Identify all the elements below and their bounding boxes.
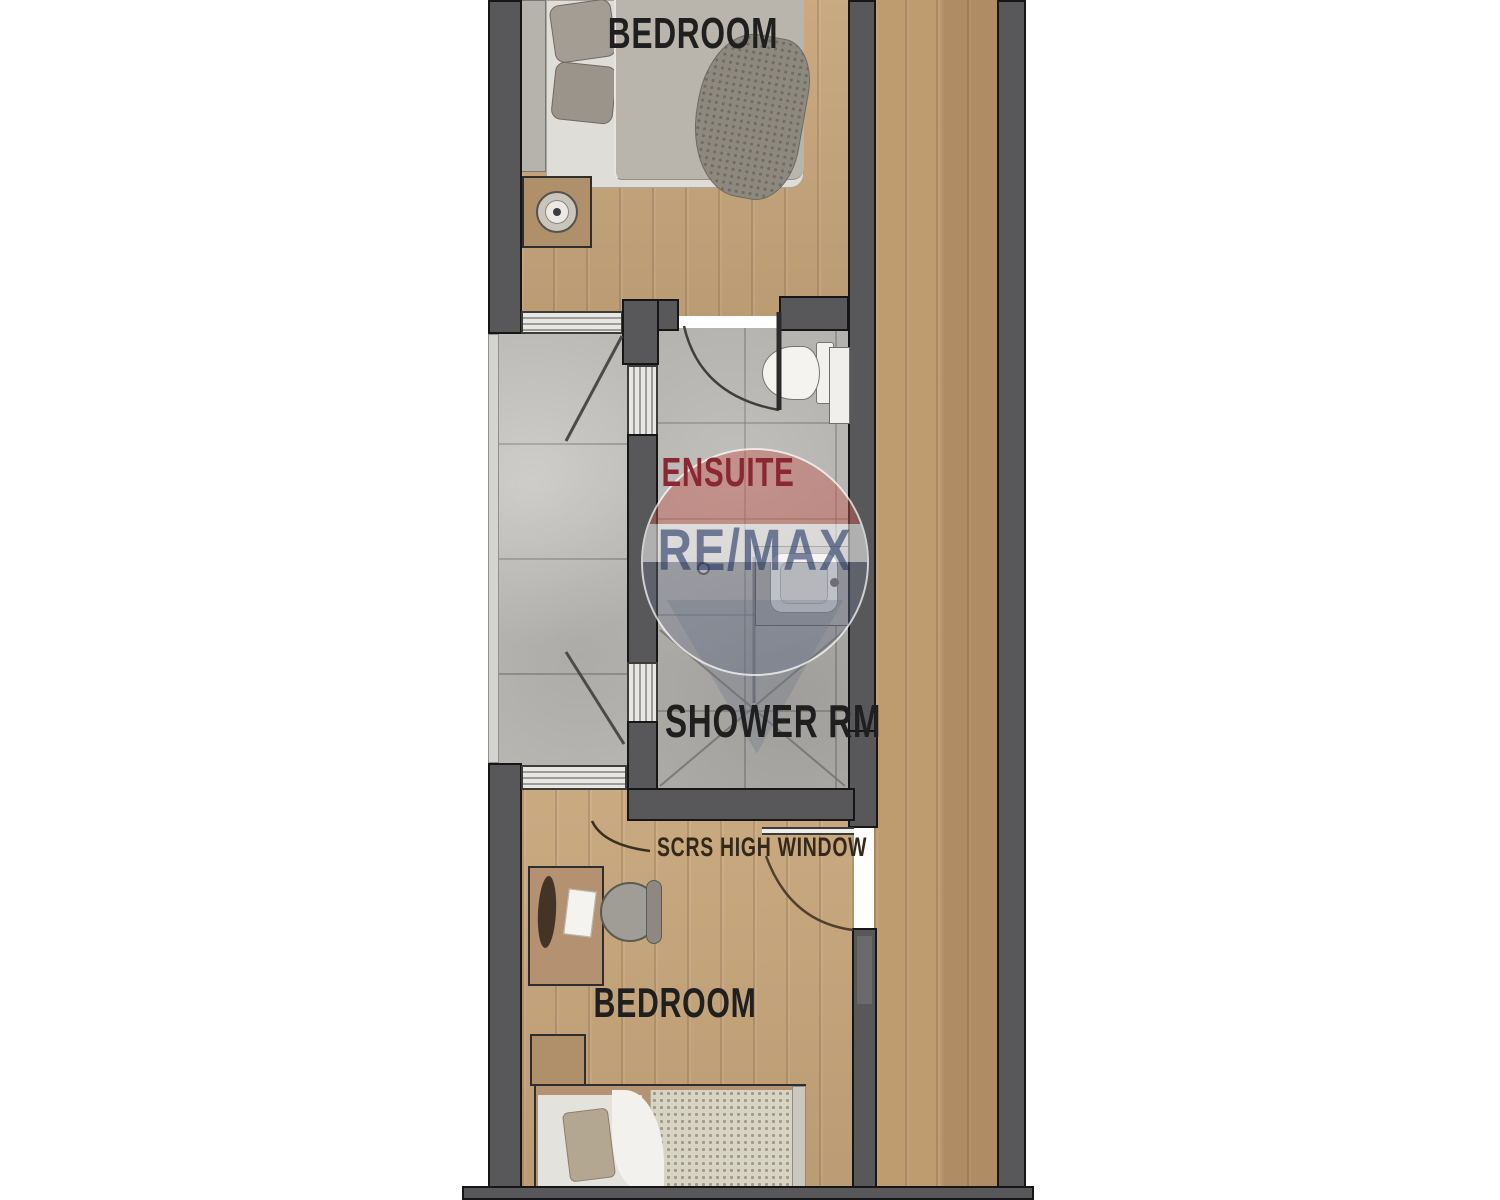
landing-door-leaf-lower: [566, 652, 624, 744]
watermark-brand-text: RE/MAX: [624, 522, 886, 580]
room-label-bedroom-bottom: BEDROOM: [578, 982, 772, 1024]
landing-door-leaf-upper: [566, 336, 622, 441]
window-note-leader-line: [592, 821, 650, 851]
room-label-bedroom-top: BEDROOM: [596, 12, 790, 56]
room-label-ensuite: ENSUITE: [656, 452, 800, 493]
ensuite-door-arc: [684, 326, 779, 410]
floor-plan: RE/MAX BEDROOM ENSUITE SHOWER RM SCRS HI…: [0, 0, 1500, 1200]
window-note-label: SCRS HIGH WINDOW: [657, 834, 837, 861]
bedroom-bottom-door-arc: [766, 856, 853, 930]
room-label-shower: SHOWER RM: [665, 698, 845, 744]
